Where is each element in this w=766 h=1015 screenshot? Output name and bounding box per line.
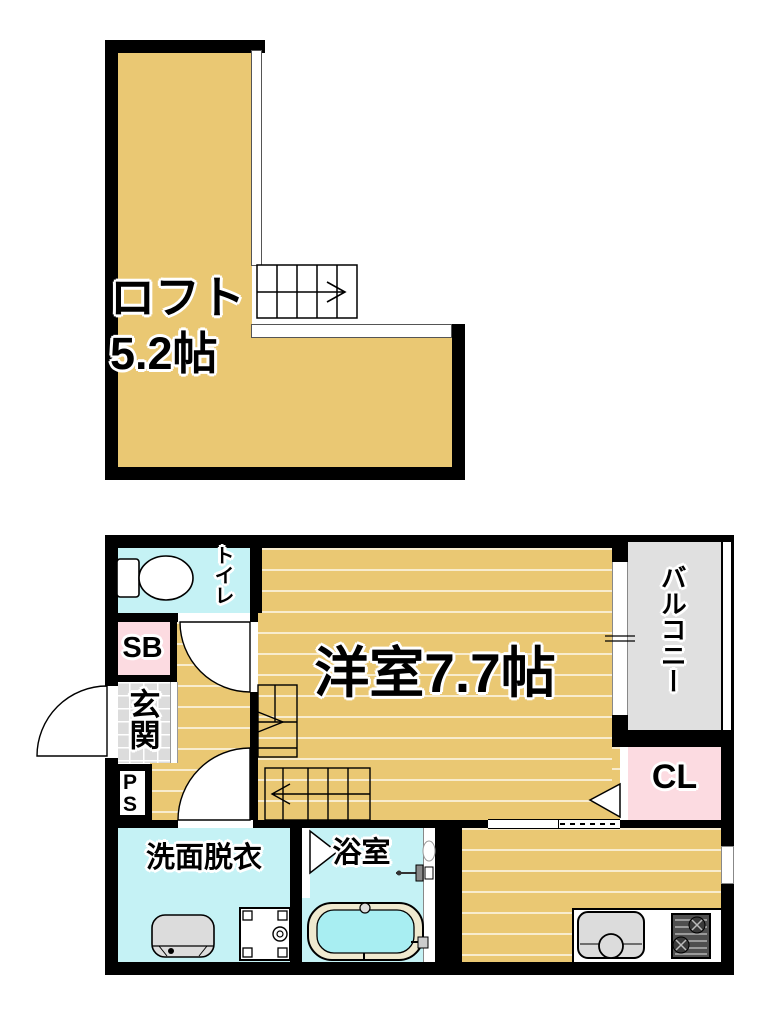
loft-wall-left [105, 40, 118, 480]
kitchen-sliding-door [488, 819, 620, 829]
shoebox-right-wall [170, 622, 177, 682]
main-room-label: 洋室7.7帖 [258, 645, 612, 703]
loft-wall-right [452, 324, 465, 480]
washroom-label: 洗面脱衣 [118, 843, 290, 873]
pipe-space-label-s: S [123, 794, 137, 816]
loft-floor-upper [118, 53, 252, 467]
loft-stairs-icon [257, 265, 357, 318]
balcony-left-wall-upper [612, 535, 628, 562]
main-room-door-opening [250, 622, 258, 692]
balcony-bottom-wall [612, 730, 734, 747]
loft-open-edge-horizontal [251, 324, 452, 338]
loft-size-label: 5.2帖 [110, 330, 218, 377]
bath-right-wall [435, 828, 462, 962]
outer-wall-bottom [105, 962, 734, 975]
balcony-label: バルコニー [658, 564, 685, 712]
main-room-floor-patch [612, 747, 620, 820]
kitchen-counter [572, 908, 721, 962]
shoe-box-label: SB [115, 633, 170, 663]
entrance-door-swing-icon [37, 686, 107, 756]
pipe-space-label: P S [123, 772, 137, 816]
loft-wall-top [105, 40, 265, 53]
shoebox-bottom-wall [112, 675, 170, 682]
balcony-left-wall-lower [612, 715, 628, 730]
washroom-door-opening [178, 820, 253, 828]
balcony-outer-rail [721, 542, 734, 730]
loft-floor-lower [252, 338, 452, 467]
pipe-space-label-p: P [123, 772, 137, 794]
bath-label: 浴室 [300, 838, 423, 868]
loft-open-edge-vertical [251, 50, 262, 266]
toilet-door-opening [178, 613, 252, 622]
entrance-label: 玄関 [125, 688, 158, 760]
loft-name-label: ロフト [110, 274, 245, 321]
closet-door-opening [620, 747, 628, 820]
sliding-door-track [560, 823, 618, 825]
balcony-window [612, 562, 628, 715]
toilet-bottom-wall [105, 613, 178, 622]
kitchen-window [721, 846, 734, 884]
loft-wall-bottom [105, 467, 465, 480]
entrance-step [170, 682, 178, 763]
toilet-right-wall [250, 535, 262, 613]
sliding-door-leaf [488, 820, 559, 828]
toilet-label: トイレ [211, 545, 232, 613]
outer-wall-top [105, 535, 622, 548]
front-door-opening [105, 686, 118, 758]
bath-ledge [423, 828, 435, 962]
closet-label: CL [628, 760, 721, 796]
balcony-top-wall [622, 535, 734, 542]
floor-plan: ロフト 5.2帖 洋室7.7帖 トイレ SB 玄関 P S 洗面脱衣 浴室 バル… [0, 0, 766, 1015]
